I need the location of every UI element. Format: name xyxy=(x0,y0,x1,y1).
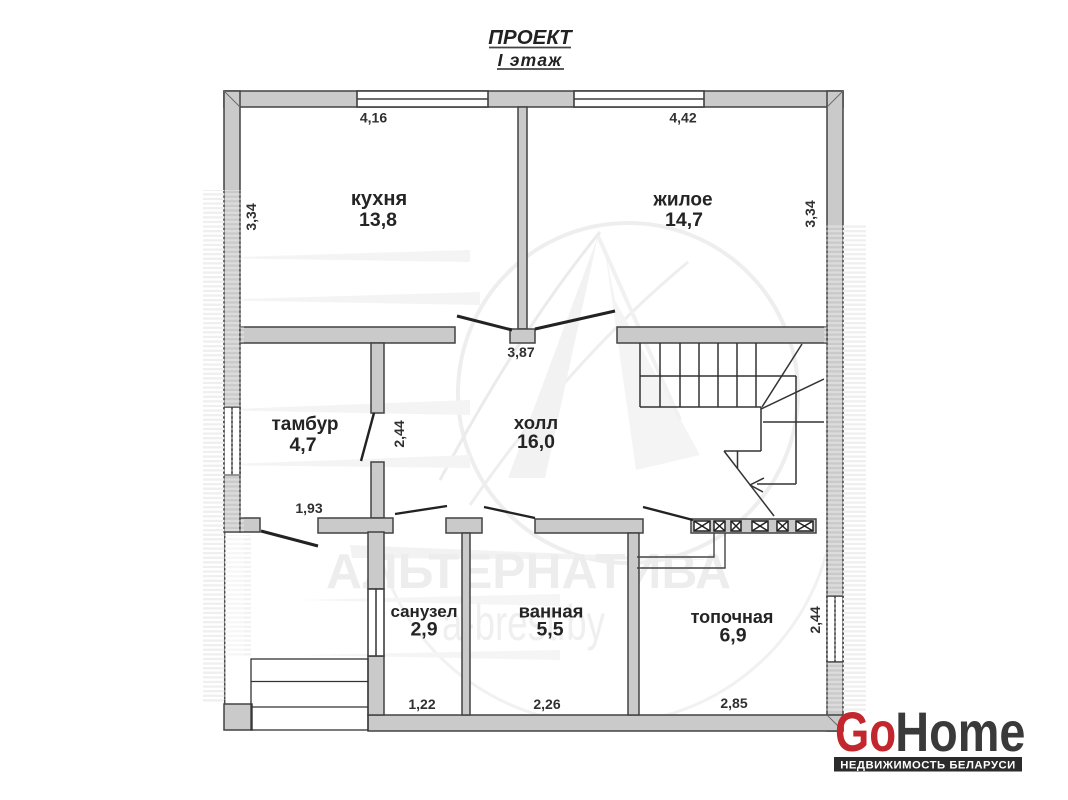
svg-text:ПРОЕКТ: ПРОЕКТ xyxy=(488,26,573,49)
svg-text:4,7: 4,7 xyxy=(289,434,316,456)
svg-text:Home: Home xyxy=(895,701,1025,763)
svg-text:2,9: 2,9 xyxy=(410,619,437,641)
svg-text:АЛЬТЕРНАТИВА: АЛЬТЕРНАТИВА xyxy=(326,545,731,599)
svg-text:6,9: 6,9 xyxy=(719,625,746,647)
svg-text:2,44: 2,44 xyxy=(807,606,823,633)
svg-text:НЕДВИЖИМОСТЬ БЕЛАРУСИ: НЕДВИЖИМОСТЬ БЕЛАРУСИ xyxy=(840,760,1016,772)
svg-text:жилое: жилое xyxy=(652,190,712,211)
svg-text:I этаж: I этаж xyxy=(498,50,563,70)
svg-text:14,7: 14,7 xyxy=(665,209,703,231)
svg-text:тамбур: тамбур xyxy=(271,414,338,435)
svg-text:16,0: 16,0 xyxy=(517,431,555,453)
svg-text:13,8: 13,8 xyxy=(359,209,397,231)
svg-text:кухня: кухня xyxy=(351,188,407,210)
svg-text:1,22: 1,22 xyxy=(408,696,435,712)
svg-text:3,34: 3,34 xyxy=(243,203,259,230)
svg-text:5,5: 5,5 xyxy=(536,619,563,641)
svg-text:3,34: 3,34 xyxy=(802,200,818,227)
svg-text:2,26: 2,26 xyxy=(533,696,560,712)
svg-text:4,16: 4,16 xyxy=(360,110,387,126)
svg-text:2,44: 2,44 xyxy=(391,420,407,447)
svg-text:холл: холл xyxy=(514,412,558,433)
svg-text:4,42: 4,42 xyxy=(669,110,696,126)
svg-text:3,87: 3,87 xyxy=(507,344,534,360)
svg-text:1,93: 1,93 xyxy=(295,500,322,516)
svg-text:2,85: 2,85 xyxy=(720,695,747,711)
svg-text:Go: Go xyxy=(835,701,896,763)
